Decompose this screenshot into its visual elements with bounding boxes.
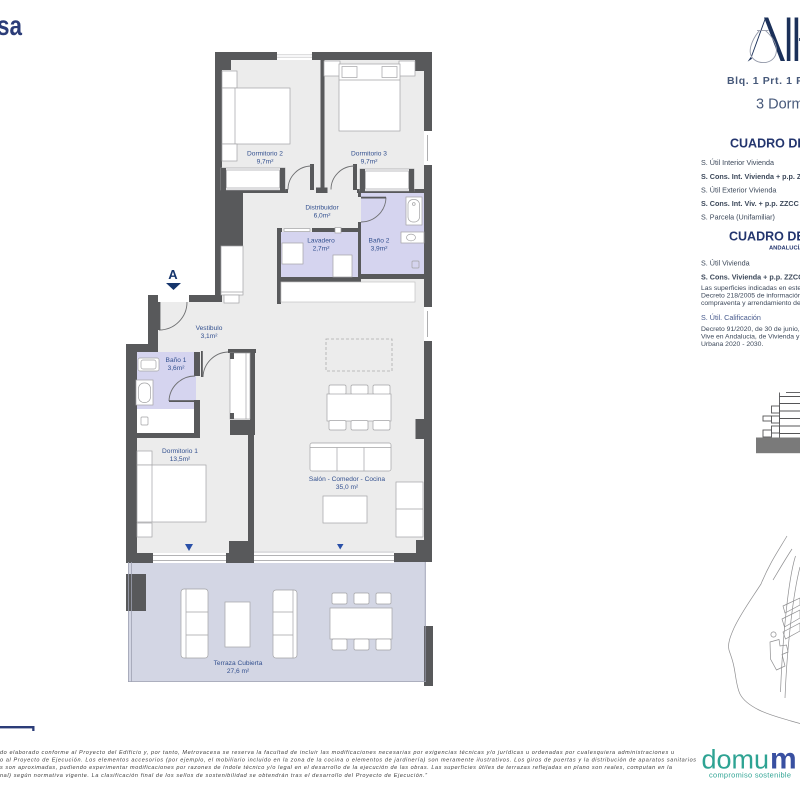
svg-text:9,7m²: 9,7m² bbox=[361, 159, 379, 166]
svg-text:Baño 2: Baño 2 bbox=[369, 238, 390, 245]
svg-text:s son aproximadas, pudiendo ex: s son aproximadas, pudiendo experimentar… bbox=[0, 765, 672, 771]
svg-text:nal) según normativa vigente.: nal) según normativa vigente. La clasifi… bbox=[0, 773, 428, 779]
svg-text:3 Dormitorios: 3 Dormitorios bbox=[756, 97, 800, 113]
svg-text:Blq. 1 Prt. 1 Planta 2: Blq. 1 Prt. 1 Planta 2 bbox=[727, 75, 800, 87]
svg-text:Vive en Andalucia, de Vivienda: Vive en Andalucia, de Vivienda y Rehabil… bbox=[701, 334, 800, 341]
svg-text:S. Útil Vivienda: S. Útil Vivienda bbox=[701, 259, 750, 268]
svg-text:35,0 m²: 35,0 m² bbox=[336, 484, 359, 491]
svg-text:27,6 m²: 27,6 m² bbox=[227, 668, 250, 675]
svg-text:Distribuidor: Distribuidor bbox=[305, 205, 339, 212]
svg-text:o al Proyecto de Ejecución. Lo: o al Proyecto de Ejecución. Los elemento… bbox=[0, 758, 696, 764]
svg-text:Decreto 91/2020, de 30 de juni: Decreto 91/2020, de 30 de junio, del Pla… bbox=[701, 326, 800, 333]
svg-text:compraventa y arrendamiento de: compraventa y arrendamiento de viviendas… bbox=[701, 300, 800, 307]
svg-text:S. Cons. Int. Viv. + p.p. ZZCC: S. Cons. Int. Viv. + p.p. ZZCC bbox=[701, 199, 799, 208]
svg-text:2,7m²: 2,7m² bbox=[313, 246, 331, 253]
svg-text:CUADRO DE SUPERFICIES: CUADRO DE SUPERFICIES bbox=[730, 137, 800, 151]
svg-text:Las superficies indicadas en e: Las superficies indicadas en este plano … bbox=[701, 285, 800, 292]
svg-text:S. Parcela (Unifamiliar): S. Parcela (Unifamiliar) bbox=[701, 213, 775, 222]
svg-text:S. Útil Exterior Vivienda: S. Útil Exterior Vivienda bbox=[701, 186, 776, 195]
svg-text:Lavadero: Lavadero bbox=[307, 238, 335, 245]
svg-text:Salón - Comedor - Cocina: Salón - Comedor - Cocina bbox=[309, 476, 386, 483]
svg-text:Dormitorio 1: Dormitorio 1 bbox=[162, 448, 198, 455]
svg-text:Dormitorio 3: Dormitorio 3 bbox=[351, 151, 387, 158]
svg-text:ANDALUCÍA: ANDALUCÍA bbox=[769, 244, 800, 252]
svg-text:S. Útil Interior Vivienda: S. Útil Interior Vivienda bbox=[701, 158, 774, 167]
svg-text:do elaborado conforme al Proye: do elaborado conforme al Proyecto del Ed… bbox=[0, 750, 674, 756]
svg-text:3,6m²: 3,6m² bbox=[168, 365, 186, 372]
svg-text:Baño 1: Baño 1 bbox=[166, 357, 187, 364]
svg-text:Dormitorio 2: Dormitorio 2 bbox=[247, 151, 283, 158]
svg-text:S. Cons. Int. Vivienda + p.p.: S. Cons. Int. Vivienda + p.p. ZZCC bbox=[701, 172, 800, 181]
svg-text:compromiso sostenible: compromiso sostenible bbox=[709, 771, 791, 780]
svg-text:A: A bbox=[168, 267, 178, 282]
svg-text:6,0m²: 6,0m² bbox=[314, 213, 332, 220]
svg-text:S. Cons. Vivienda + p.p. ZZCC: S. Cons. Vivienda + p.p. ZZCC bbox=[701, 273, 800, 282]
svg-text:13,5m²: 13,5m² bbox=[170, 456, 191, 463]
svg-text:sa: sa bbox=[0, 10, 22, 41]
svg-text:Urbana 2020 - 2030.: Urbana 2020 - 2030. bbox=[701, 341, 763, 348]
svg-text:CUADRO DE SUPERFICIES: CUADRO DE SUPERFICIES bbox=[729, 230, 800, 244]
svg-text:3,1m²: 3,1m² bbox=[201, 333, 219, 340]
svg-text:Decreto 218/2005 de informació: Decreto 218/2005 de información al consu… bbox=[701, 293, 800, 300]
svg-text:3,9m²: 3,9m² bbox=[371, 246, 389, 253]
svg-text:9,7m²: 9,7m² bbox=[257, 159, 275, 166]
svg-text:Terraza Cubierta: Terraza Cubierta bbox=[214, 660, 263, 667]
svg-text:Vestibulo: Vestibulo bbox=[196, 325, 223, 332]
svg-text:S. Útil. Calificación: S. Útil. Calificación bbox=[701, 313, 761, 322]
